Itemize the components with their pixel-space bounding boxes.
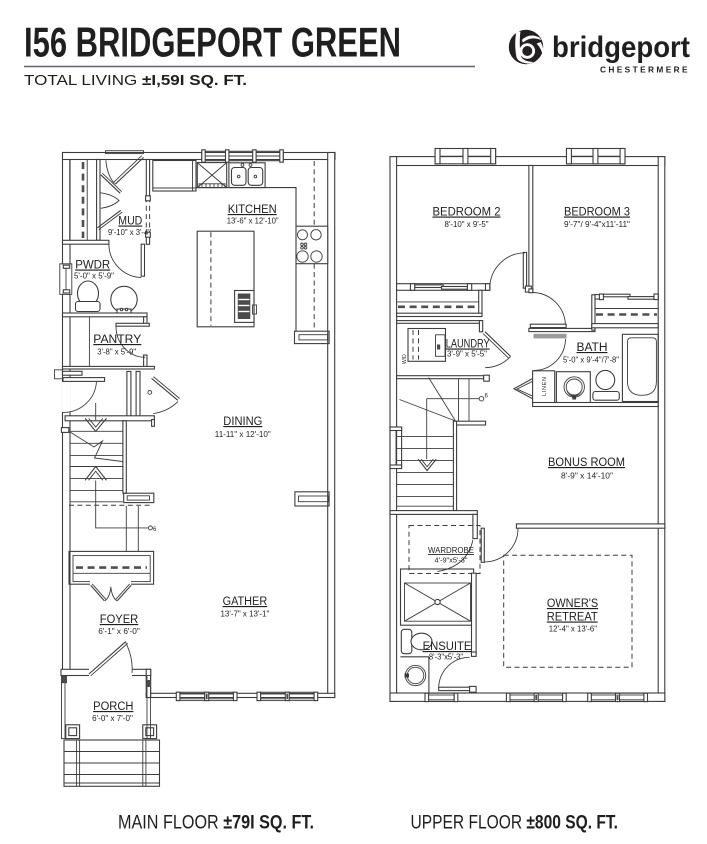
svg-text:3'-9" x 5'-5": 3'-9" x 5'-5" [447, 349, 487, 359]
svg-text:9'-7"/ 9'-4"x11'-11": 9'-7"/ 9'-4"x11'-11" [564, 219, 630, 229]
svg-text:FOYER: FOYER [100, 614, 139, 626]
svg-text:W/D: W/D [402, 354, 408, 364]
svg-text:KITCHEN: KITCHEN [228, 204, 277, 216]
svg-text:CHESTERMERE: CHESTERMERE [600, 65, 690, 75]
svg-text:BATH: BATH [577, 342, 608, 354]
svg-text:8'-3"x5'-3": 8'-3"x5'-3" [429, 652, 463, 662]
svg-text:13'-6" x 12'-10": 13'-6" x 12'-10" [227, 216, 279, 226]
svg-text:3'-8" x 5'-9": 3'-8" x 5'-9" [97, 347, 136, 357]
svg-text:8'-9" x 14'-10": 8'-9" x 14'-10" [561, 471, 613, 481]
svg-text:11-11" x 12'-10": 11-11" x 12'-10" [215, 429, 271, 439]
svg-text:BONUS ROOM: BONUS ROOM [548, 457, 625, 469]
svg-text:I56 BRIDGEPORT GREEN: I56 BRIDGEPORT GREEN [24, 19, 401, 66]
svg-text:BEDROOM 2: BEDROOM 2 [433, 207, 501, 219]
svg-text:12'-4" x 13'-6": 12'-4" x 13'-6" [549, 624, 597, 634]
svg-text:13'-7" x 13'-1": 13'-7" x 13'-1" [221, 609, 270, 619]
svg-text:PORCH: PORCH [93, 701, 133, 713]
svg-text:TOTAL LIVING ±I,59I SQ. FT.: TOTAL LIVING ±I,59I SQ. FT. [24, 73, 247, 89]
svg-text:5'-0" x 9'-4"/7'-8": 5'-0" x 9'-4"/7'-8" [563, 355, 619, 365]
svg-text:MAIN FLOOR ±79I SQ. FT.: MAIN FLOOR ±79I SQ. FT. [118, 813, 314, 834]
svg-text:5'-0" x 5'-9": 5'-0" x 5'-9" [74, 271, 114, 281]
svg-text:RETREAT: RETREAT [547, 612, 598, 624]
svg-text:GATHER: GATHER [223, 596, 268, 608]
svg-text:4'-9"x5'-3": 4'-9"x5'-3" [435, 556, 468, 565]
svg-text:MUD: MUD [118, 216, 142, 228]
svg-text:UPPER FLOOR ±800 SQ. FT.: UPPER FLOOR ±800 SQ. FT. [411, 813, 619, 834]
svg-text:8'-10" x 9'-5": 8'-10" x 9'-5" [445, 219, 489, 229]
svg-text:9'-10" x 3'-4": 9'-10" x 3'-4" [108, 227, 151, 237]
svg-text:6'-1" x 6'-0": 6'-1" x 6'-0" [98, 626, 140, 636]
svg-text:LINEN: LINEN [542, 377, 548, 396]
svg-text:bridgeport: bridgeport [552, 31, 690, 64]
svg-text:WARDROBE: WARDROBE [428, 545, 474, 555]
svg-text:6'-0" x 7'-0": 6'-0" x 7'-0" [92, 713, 133, 723]
svg-text:OWNER'S: OWNER'S [547, 598, 599, 610]
svg-text:DINING: DINING [223, 416, 262, 428]
svg-text:PANTRY: PANTRY [93, 334, 141, 346]
svg-text:BEDROOM 3: BEDROOM 3 [564, 207, 630, 219]
